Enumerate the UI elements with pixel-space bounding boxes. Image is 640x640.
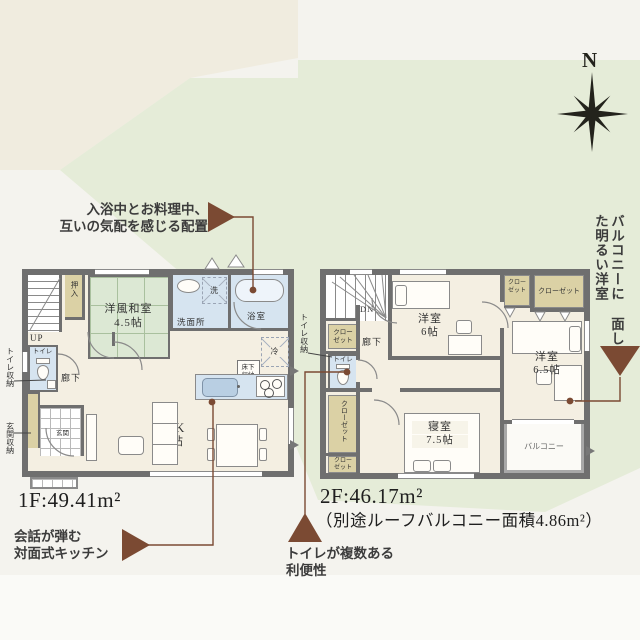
- toilet-room-2f: トイレ: [328, 354, 358, 392]
- window: [584, 321, 590, 351]
- coffee-table: [118, 436, 144, 455]
- toilet-bowl-icon: [37, 365, 49, 380]
- tatami-room-size: 4.5帖: [90, 317, 167, 330]
- balcony-callout-col1: バルコニーに: [609, 214, 624, 301]
- dn-label: DN: [360, 304, 374, 314]
- toilet-storage-label-1f: トイレ収納: [5, 347, 15, 387]
- closet: クロー ゼット: [504, 275, 530, 306]
- window: [95, 269, 149, 275]
- closet: クローゼット: [534, 275, 584, 308]
- floor2-area-label: 2F:46.17m²: [320, 484, 423, 509]
- pillow-icon: [395, 285, 407, 306]
- wall: [388, 356, 504, 360]
- master-name: 寝室: [412, 421, 468, 434]
- entrance-storage: [28, 392, 40, 448]
- kitchen-callout-line2: 対面式キッチン: [14, 545, 134, 562]
- faucet-icon: [237, 385, 240, 388]
- bath-callout: 入浴中とお料理中、 互いの気配を感じる配置: [36, 201, 208, 235]
- balcony-label: バルコニー: [524, 442, 564, 452]
- closet: クロー ゼット: [328, 324, 358, 349]
- bathtub-icon: [235, 279, 284, 302]
- bathroom: 浴室: [228, 275, 288, 331]
- window: [22, 352, 28, 372]
- tatami-room-name: 洋風和室: [90, 303, 167, 316]
- toilet-bowl-icon: [337, 370, 349, 385]
- kitchen-callout: 会話が弾む 対面式キッチン: [14, 528, 134, 562]
- closet-label: クローゼット: [538, 287, 580, 295]
- washroom-label: 洗面所: [177, 317, 206, 327]
- up-label: UP: [30, 333, 44, 344]
- chair-icon: [259, 428, 267, 441]
- toilet-callout: トイレが複数ある 利便性: [286, 545, 426, 579]
- chair-icon: [207, 428, 215, 441]
- arrow-right-icon: [122, 529, 150, 561]
- window: [400, 269, 446, 275]
- balcony: バルコニー: [504, 424, 584, 473]
- wall: [356, 305, 360, 473]
- floor2-plan: DN クロー ゼット 廊下 トイレ クローゼット クロー ゼット 洋室 6帖 ク…: [320, 269, 590, 479]
- tv-board: [86, 414, 97, 461]
- bed-icon: [392, 281, 450, 309]
- bed-icon: [512, 321, 582, 354]
- hallway-label-2f: 廊下: [362, 337, 382, 348]
- chair-icon: [456, 320, 472, 334]
- background-shape-bottom: [0, 575, 640, 640]
- bath-callout-line2: 互いの気配を感じる配置: [36, 218, 208, 235]
- floor1-plan: UP 押入 洋風和室 4.5帖 洗 洗面所 浴室 トイレ 廊下 玄関 LDK 1…: [22, 269, 294, 477]
- toilet-storage-label-2f: トイレ収納: [299, 313, 309, 353]
- toilet-label-1f: トイレ: [30, 348, 55, 356]
- bath-callout-line1: 入浴中とお料理中、: [36, 201, 208, 218]
- toilet-tank-icon: [336, 364, 350, 369]
- pillow-icon: [433, 460, 451, 472]
- floor1-area-label: 1F:49.41m²: [18, 488, 121, 513]
- arrow-down-icon: [600, 346, 640, 376]
- stairs-1f: [28, 275, 62, 332]
- wall: [112, 332, 115, 346]
- closet: クローゼット: [328, 395, 358, 453]
- closet-label: クロー: [329, 329, 357, 337]
- master-size: 7.5帖: [412, 435, 468, 448]
- wall: [326, 388, 504, 392]
- pillow-icon: [413, 460, 431, 472]
- wall: [326, 318, 360, 321]
- closet-label: ゼット: [505, 288, 529, 295]
- tatami-room: 洋風和室 4.5帖: [88, 275, 170, 359]
- toilet-room-1f: トイレ: [28, 345, 58, 392]
- toilet-callout-line1: トイレが複数ある: [286, 545, 426, 562]
- toilet-callout-line2: 利便性: [286, 562, 426, 579]
- pillow-icon: [569, 326, 581, 352]
- chair-icon: [207, 448, 215, 461]
- closet-label: ゼット: [329, 337, 357, 345]
- bedroom2-size: 6.5帖: [522, 365, 572, 378]
- arrow-right-icon: [208, 202, 235, 232]
- toilet-tank-icon: [36, 358, 50, 364]
- compass: N: [548, 48, 638, 158]
- bath-label: 浴室: [247, 311, 266, 321]
- bedroom1-size: 6帖: [402, 327, 458, 340]
- wall: [326, 453, 360, 456]
- window: [150, 471, 262, 477]
- kitchen-callout-line1: 会話が弾む: [14, 528, 134, 545]
- washroom: 洗 洗面所: [170, 275, 228, 331]
- bedroom2-name: 洋室: [522, 351, 572, 364]
- stove-icon: [256, 376, 285, 397]
- sink-icon: [177, 279, 200, 293]
- floor2-area-note: （別途ルーフバルコニー面積4.86m²）: [316, 507, 602, 531]
- bedroom1-name: 洋室: [402, 313, 458, 326]
- window: [398, 473, 474, 479]
- window: [288, 408, 294, 444]
- washer-label: 洗: [209, 286, 220, 296]
- chair-icon: [259, 448, 267, 461]
- kitchen-sink-icon: [202, 378, 238, 397]
- compass-north-label: N: [582, 48, 597, 73]
- wall: [530, 308, 584, 312]
- entrance: 玄関: [40, 405, 84, 456]
- window: [253, 269, 283, 275]
- closet: クロー ゼット: [328, 456, 358, 473]
- toilet-storage-shelf-1f: [47, 380, 56, 389]
- fridge-label: 冷: [270, 347, 281, 357]
- washer-space: 洗: [202, 277, 227, 304]
- oshiire-closet: 押入: [65, 275, 85, 320]
- door-opening: [356, 360, 360, 382]
- window: [350, 269, 372, 275]
- balcony-callout: バルコニーに 面した明るい洋室: [592, 214, 624, 354]
- kitchen-counter: [195, 374, 288, 400]
- dining-table: [216, 424, 258, 467]
- wall: [326, 351, 360, 354]
- door-opening: [372, 388, 400, 392]
- fridge-space: 冷: [261, 337, 289, 367]
- toilet-label-2f: トイレ: [330, 356, 356, 364]
- closet-label: クロー: [505, 280, 529, 287]
- entrance-storage-label: 玄関収納: [5, 422, 15, 454]
- closet-label: ゼット: [329, 465, 357, 472]
- oshiire-label: 押入: [70, 281, 79, 298]
- closet-label: クローゼット: [340, 400, 348, 442]
- kitchen-island: [152, 402, 178, 465]
- entrance-label: 玄関: [55, 430, 70, 438]
- hallway-label-1f: 廊下: [61, 373, 81, 384]
- underfloor-label-1: 床下: [238, 364, 258, 372]
- floorplan-page: { "colors": { "accent_brown": "#7b4a33",…: [0, 0, 640, 640]
